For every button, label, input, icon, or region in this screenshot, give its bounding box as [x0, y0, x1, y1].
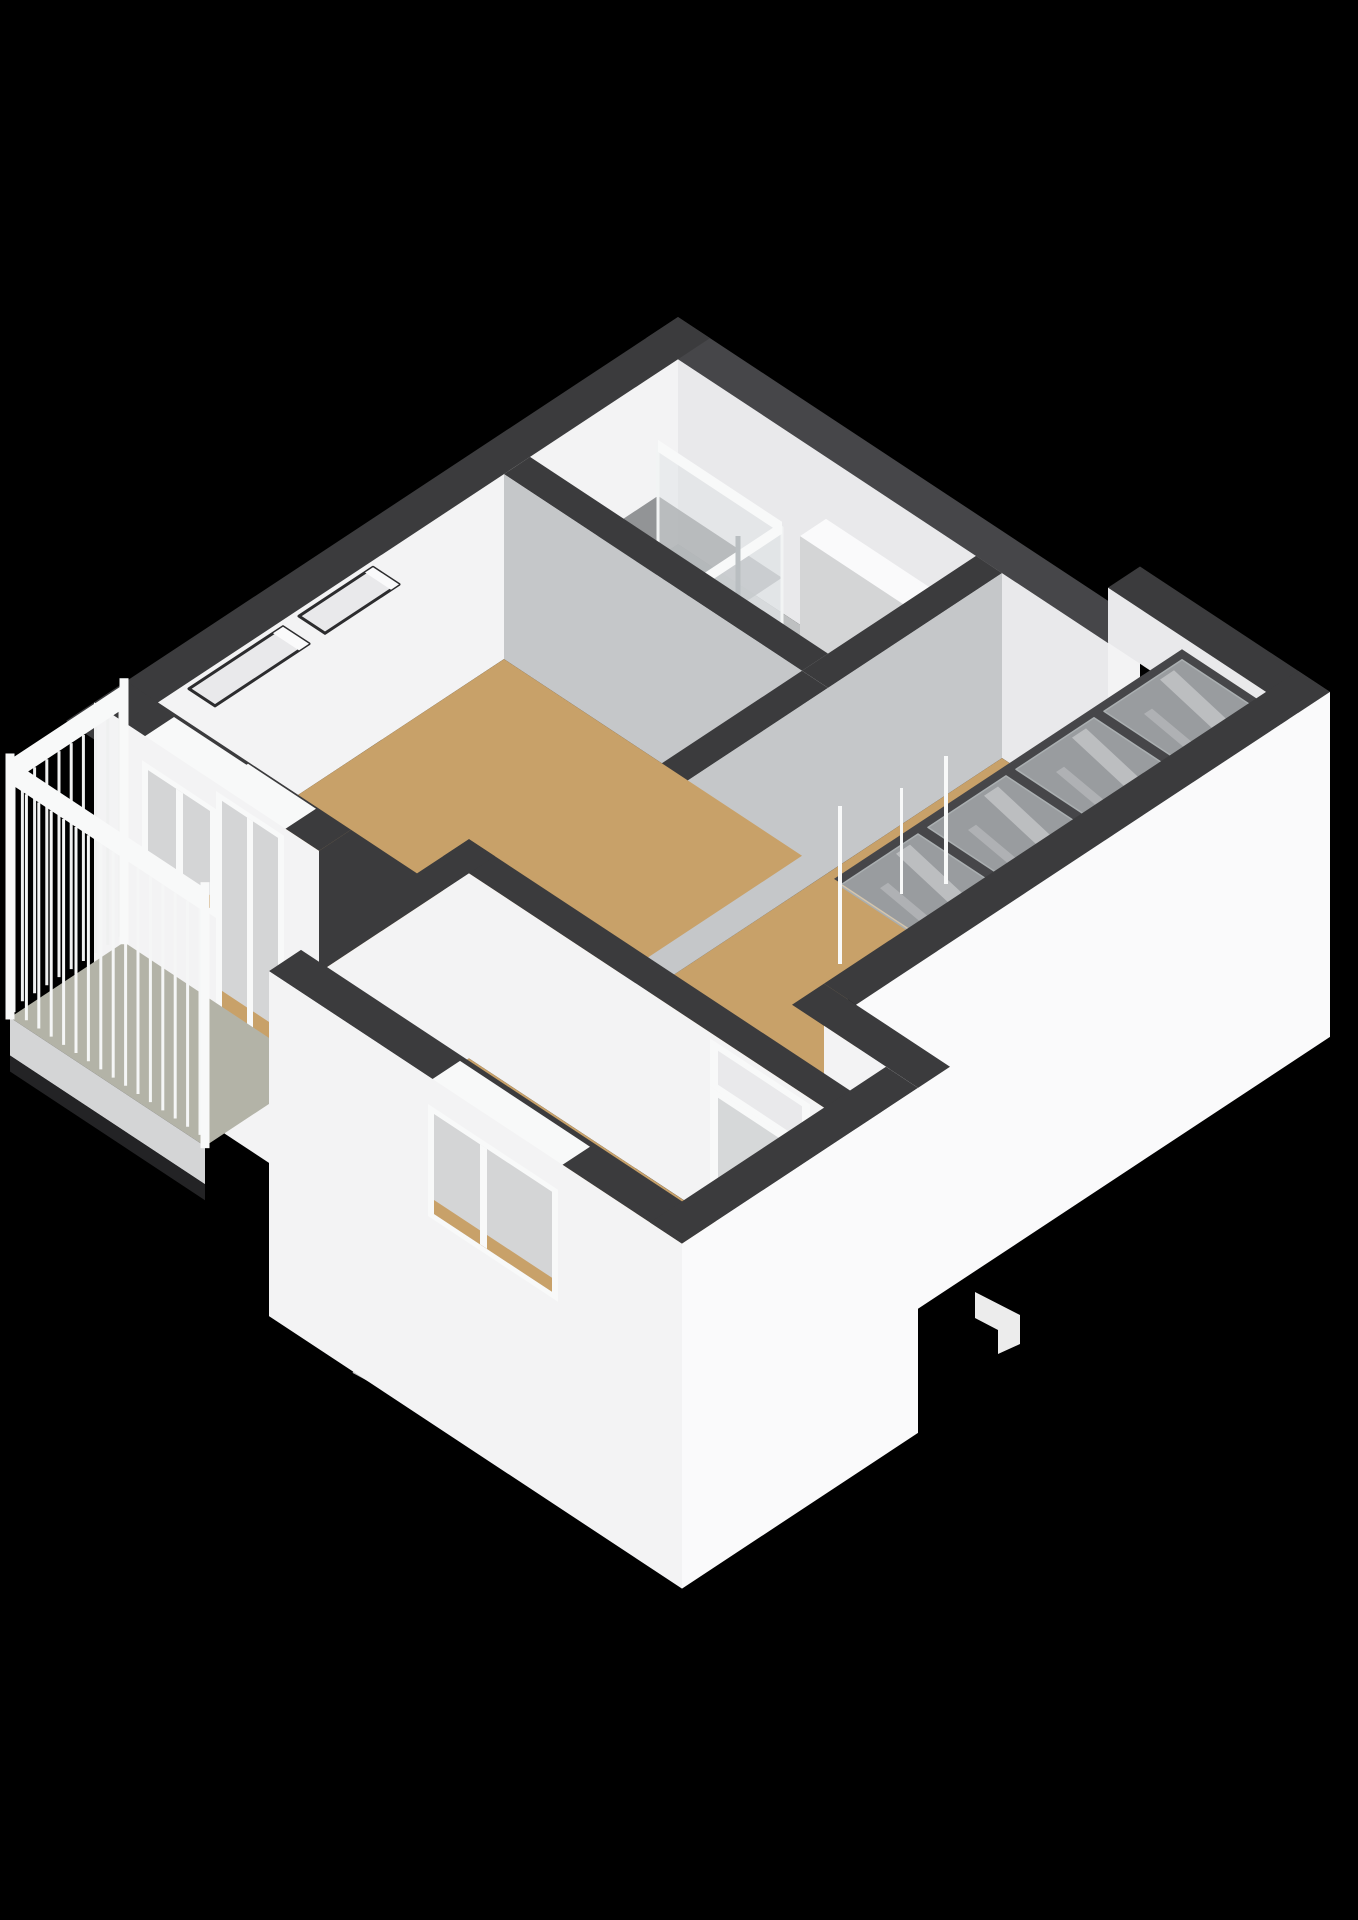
- balcony-rail-post: [201, 882, 210, 1148]
- balustrade-spindle: [900, 788, 903, 894]
- balcony-rail-post: [6, 753, 15, 1019]
- stair-peek: [975, 1292, 1020, 1354]
- balcony-rail-post: [120, 678, 129, 944]
- balustrade-spindle: [838, 806, 842, 964]
- canvas-black-background: [0, 0, 1358, 1920]
- balcony-door-mullion: [247, 817, 253, 1029]
- floorplan-3d-render: [0, 0, 1358, 1920]
- balustrade-spindle: [944, 756, 948, 884]
- bedroom-window-mullion: [480, 1144, 487, 1249]
